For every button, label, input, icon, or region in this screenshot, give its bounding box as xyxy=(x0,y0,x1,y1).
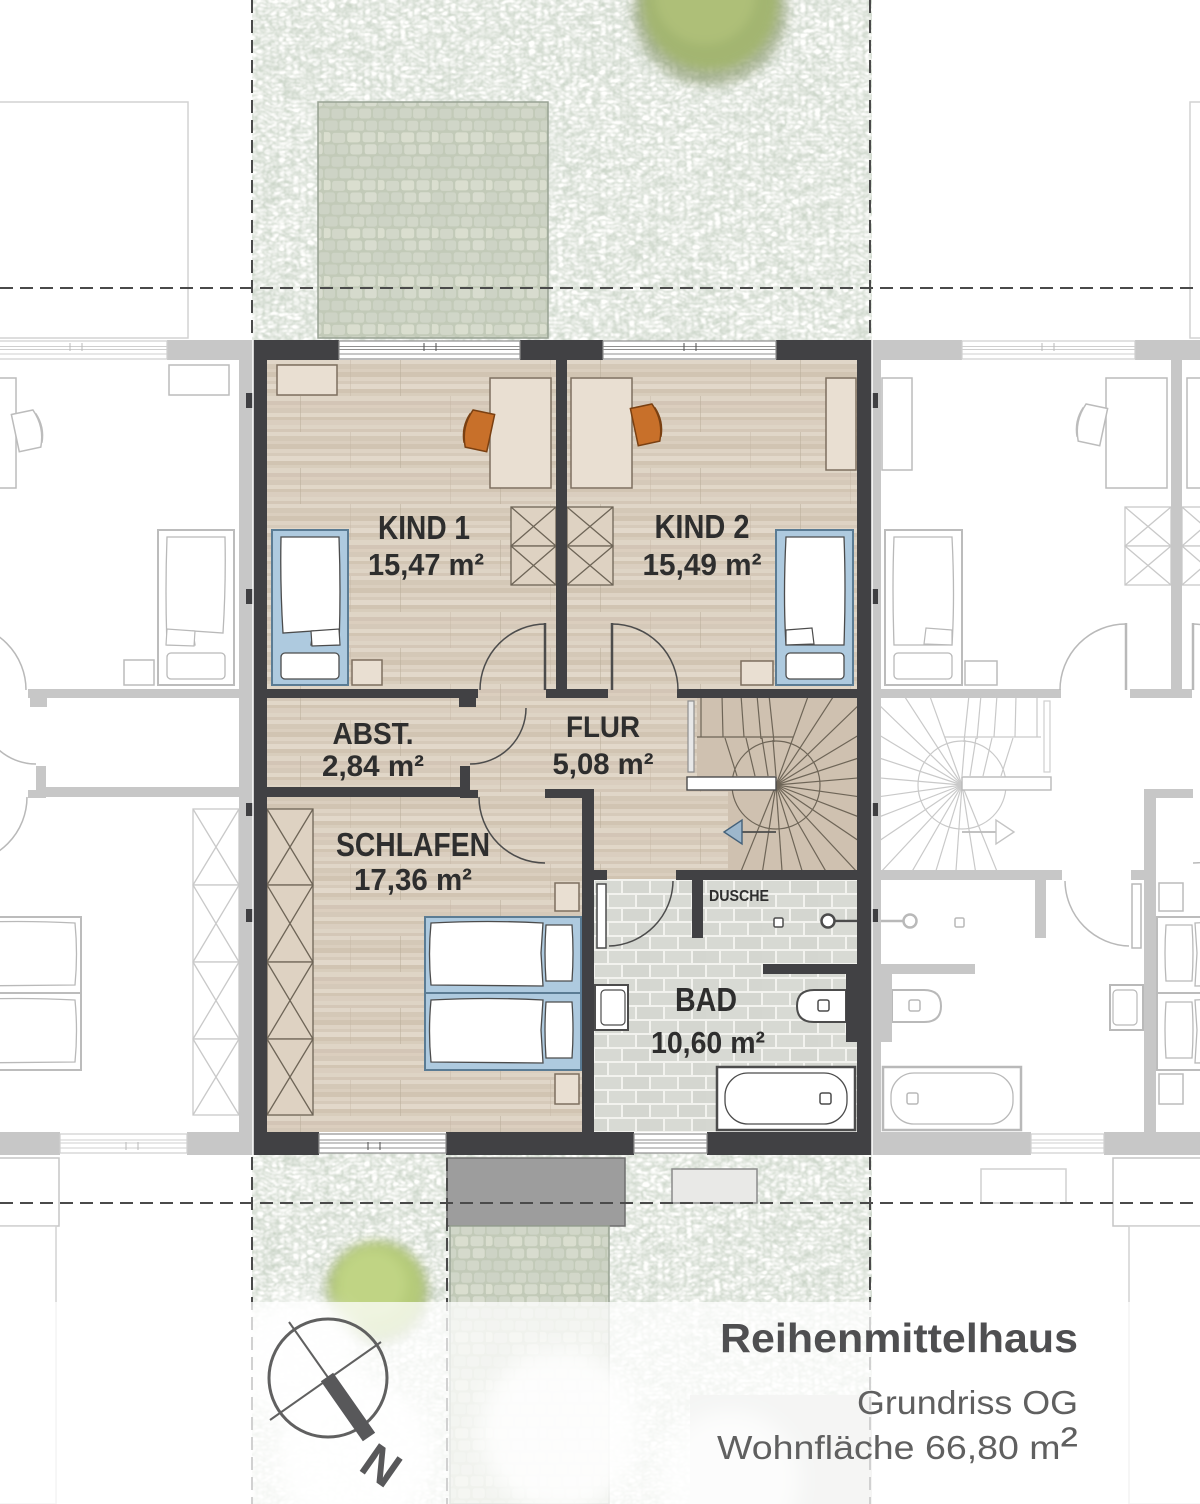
svg-text:15,49 m²: 15,49 m² xyxy=(643,547,762,582)
svg-text:BAD: BAD xyxy=(675,981,737,1018)
svg-text:2,84 m²: 2,84 m² xyxy=(322,750,424,783)
svg-text:10,60 m²: 10,60 m² xyxy=(651,1025,765,1060)
svg-text:Reihenmittelhaus: Reihenmittelhaus xyxy=(720,1315,1078,1361)
svg-text:KIND 1: KIND 1 xyxy=(378,509,470,546)
svg-text:FLUR: FLUR xyxy=(566,711,640,744)
svg-text:DUSCHE: DUSCHE xyxy=(709,888,769,905)
svg-text:17,36 m²: 17,36 m² xyxy=(354,862,472,897)
svg-text:15,47 m²: 15,47 m² xyxy=(368,547,484,582)
svg-text:5,08 m²: 5,08 m² xyxy=(553,748,654,781)
svg-text:KIND 2: KIND 2 xyxy=(655,508,750,545)
svg-text:ABST.: ABST. xyxy=(333,716,414,751)
svg-text:SCHLAFEN: SCHLAFEN xyxy=(336,826,490,863)
svg-text:Grundriss OG: Grundriss OG xyxy=(857,1384,1078,1421)
